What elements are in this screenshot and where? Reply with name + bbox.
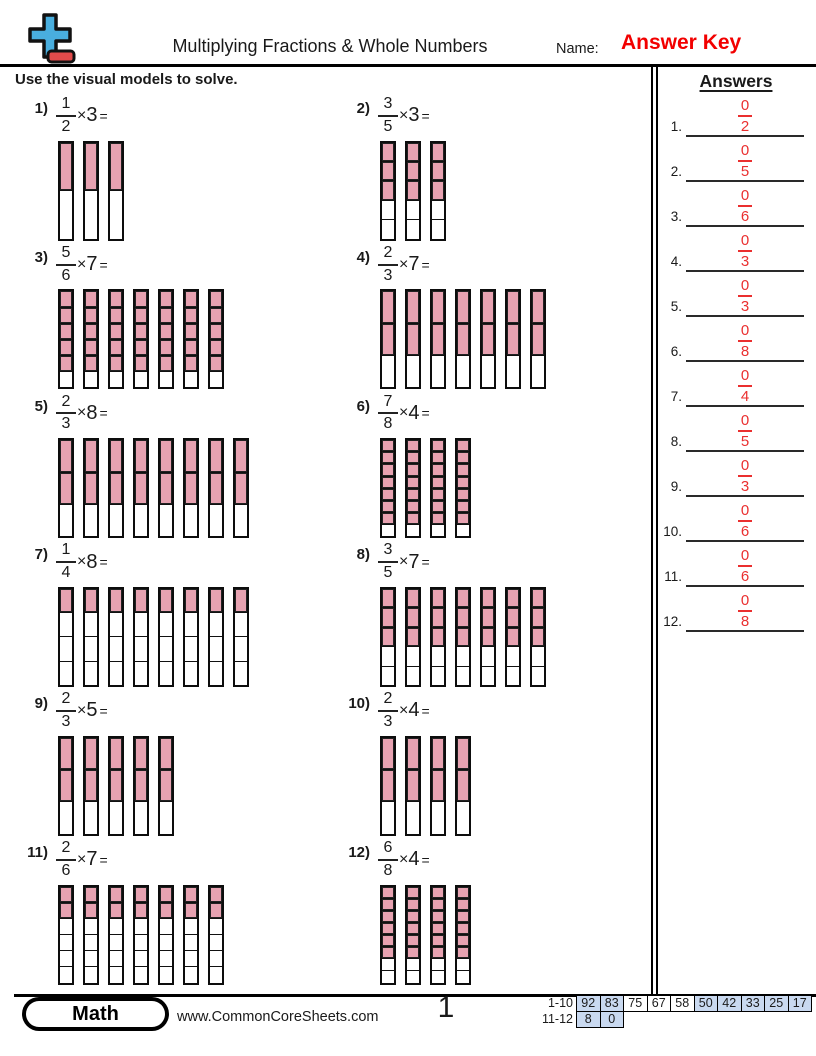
answer-number: 1. <box>656 119 682 134</box>
fraction-strip <box>108 587 124 687</box>
filled-segment <box>210 291 222 307</box>
filled-segment <box>382 608 394 627</box>
fraction-strip <box>58 587 74 687</box>
fraction-strip <box>83 438 99 538</box>
empty-segment <box>210 662 222 685</box>
fraction-strip <box>108 438 124 538</box>
fraction-denominator: 3 <box>62 416 71 433</box>
empty-segment <box>407 201 419 220</box>
multiplier: 8 <box>86 402 97 425</box>
filled-segment <box>60 356 72 372</box>
filled-segment <box>135 356 147 372</box>
empty-segment <box>160 802 172 833</box>
problem-11: 11)26×7= <box>20 840 342 989</box>
filled-segment <box>85 903 97 919</box>
bar-model <box>380 885 642 985</box>
filled-segment <box>110 291 122 307</box>
filled-segment <box>482 608 494 627</box>
fraction-strip <box>455 289 471 389</box>
problem-number: 9) <box>20 691 48 712</box>
empty-segment <box>60 505 72 536</box>
filled-segment <box>135 340 147 356</box>
filled-segment <box>457 899 469 911</box>
score-cell: 83 <box>600 995 625 1012</box>
empty-segment <box>185 935 197 951</box>
equals-sign: = <box>421 257 429 273</box>
answer-number: 9. <box>656 479 682 494</box>
multiplier: 7 <box>86 848 97 871</box>
times-sign: × <box>399 851 408 869</box>
filled-segment <box>160 887 172 903</box>
score-cell: 25 <box>764 995 789 1012</box>
filled-segment <box>457 947 469 959</box>
answer-fraction: 06 <box>738 548 752 586</box>
filled-segment <box>60 473 72 505</box>
empty-segment <box>482 647 494 666</box>
empty-segment <box>85 662 97 685</box>
problem-number: 2) <box>342 96 370 117</box>
filled-segment <box>407 513 419 525</box>
filled-segment <box>432 738 444 770</box>
empty-segment <box>85 935 97 951</box>
problem-9: 9)23×5= <box>20 691 342 840</box>
empty-segment <box>185 662 197 685</box>
filled-segment <box>407 770 419 802</box>
answer-fraction: 02 <box>738 98 752 136</box>
filled-segment <box>407 181 419 200</box>
filled-segment <box>60 887 72 903</box>
filled-segment <box>457 628 469 647</box>
filled-segment <box>160 589 172 613</box>
filled-segment <box>160 324 172 340</box>
filled-segment <box>60 291 72 307</box>
filled-segment <box>210 589 222 613</box>
empty-segment <box>432 356 444 387</box>
filled-segment <box>210 340 222 356</box>
filled-segment <box>432 770 444 802</box>
filled-segment <box>185 903 197 919</box>
problem-number: 10) <box>342 691 370 712</box>
empty-segment <box>110 637 122 661</box>
filled-segment <box>382 911 394 923</box>
empty-segment <box>382 220 394 238</box>
fraction-bar <box>56 561 76 563</box>
answer-fraction-bar <box>738 250 752 252</box>
filled-segment <box>457 324 469 356</box>
fraction-strip <box>380 141 396 241</box>
empty-segment <box>507 356 519 387</box>
empty-segment <box>60 919 72 935</box>
fraction-strip <box>58 438 74 538</box>
empty-segment <box>160 613 172 637</box>
fraction-strip <box>83 141 99 241</box>
filled-segment <box>110 903 122 919</box>
score-cell: 0 <box>600 1011 625 1028</box>
answer-fraction-bar <box>738 610 752 612</box>
filled-segment <box>60 308 72 324</box>
answer-number: 7. <box>656 389 682 404</box>
problem-12: 12)68×4= <box>342 840 642 989</box>
filled-segment <box>382 162 394 181</box>
filled-segment <box>457 452 469 464</box>
empty-segment <box>160 951 172 967</box>
fraction-strip <box>83 587 99 687</box>
fraction-strip <box>108 289 124 389</box>
fraction-strip <box>158 736 174 836</box>
answer-key-text: Answer Key <box>621 31 741 55</box>
filled-segment <box>532 324 544 356</box>
empty-segment <box>85 372 97 387</box>
empty-segment <box>60 662 72 685</box>
filled-segment <box>407 935 419 947</box>
problem-5: 5)23×8= <box>20 394 342 543</box>
filled-segment <box>407 501 419 513</box>
filled-segment <box>532 589 544 608</box>
empty-segment <box>85 505 97 536</box>
empty-segment <box>185 967 197 982</box>
answer-numerator: 0 <box>741 368 749 384</box>
empty-segment <box>407 220 419 238</box>
filled-segment <box>235 473 247 505</box>
filled-segment <box>110 308 122 324</box>
answer-numerator: 0 <box>741 143 749 159</box>
empty-segment <box>407 959 419 971</box>
empty-segment <box>457 802 469 833</box>
answer-denominator: 6 <box>741 524 749 540</box>
empty-segment <box>185 505 197 536</box>
score-cell: 92 <box>576 995 601 1012</box>
math-badge: Math <box>22 997 169 1031</box>
problem-number: 3) <box>20 245 48 266</box>
times-sign: × <box>77 553 86 571</box>
filled-segment <box>210 308 222 324</box>
empty-segment <box>185 919 197 935</box>
filled-segment <box>160 903 172 919</box>
empty-segment <box>135 967 147 982</box>
problem-number: 8) <box>342 542 370 563</box>
equals-sign: = <box>99 405 107 421</box>
fraction-bar <box>378 710 398 712</box>
multiplier: 4 <box>408 699 419 722</box>
filled-segment <box>210 887 222 903</box>
filled-segment <box>407 923 419 935</box>
empty-segment <box>382 525 394 536</box>
filled-segment <box>135 887 147 903</box>
multiplier: 7 <box>86 253 97 276</box>
empty-segment <box>210 372 222 387</box>
equals-sign: = <box>421 108 429 124</box>
empty-segment <box>110 613 122 637</box>
filled-segment <box>432 628 444 647</box>
empty-segment <box>382 647 394 666</box>
fraction-strip <box>158 438 174 538</box>
empty-segment <box>407 802 419 833</box>
empty-segment <box>60 967 72 982</box>
empty-segment <box>135 919 147 935</box>
answer-item-2: 2.05 <box>656 137 812 182</box>
filled-segment <box>185 356 197 372</box>
answer-denominator: 4 <box>741 389 749 405</box>
bar-model <box>58 438 342 538</box>
filled-segment <box>60 440 72 472</box>
empty-segment <box>160 372 172 387</box>
fraction-numerator: 2 <box>62 394 71 411</box>
answer-fraction-bar <box>738 205 752 207</box>
filled-segment <box>135 903 147 919</box>
filled-segment <box>457 911 469 923</box>
problem-expression: 12×3= <box>56 96 108 136</box>
fraction-numerator: 1 <box>62 96 71 113</box>
fraction-bar <box>378 115 398 117</box>
filled-segment <box>160 440 172 472</box>
fraction-strip <box>530 289 546 389</box>
fraction-denominator: 4 <box>62 565 71 582</box>
empty-segment <box>160 662 172 685</box>
website-text: www.CommonCoreSheets.com <box>177 1009 378 1025</box>
filled-segment <box>432 162 444 181</box>
answer-numerator: 0 <box>741 503 749 519</box>
empty-segment <box>210 967 222 982</box>
empty-segment <box>210 613 222 637</box>
answer-fraction: 08 <box>738 323 752 361</box>
empty-segment <box>135 372 147 387</box>
filled-segment <box>160 356 172 372</box>
fraction-denominator: 6 <box>62 268 71 285</box>
empty-segment <box>85 637 97 661</box>
filled-segment <box>432 464 444 476</box>
fraction-strip <box>108 141 124 241</box>
answer-denominator: 6 <box>741 569 749 585</box>
fraction-denominator: 5 <box>384 565 393 582</box>
answer-denominator: 5 <box>741 434 749 450</box>
answer-number: 5. <box>656 299 682 314</box>
fraction-strip <box>455 587 471 687</box>
filled-segment <box>382 923 394 935</box>
answer-numerator: 0 <box>741 593 749 609</box>
answer-numerator: 0 <box>741 548 749 564</box>
filled-segment <box>407 440 419 452</box>
fraction-strip <box>380 736 396 836</box>
fraction-strip <box>158 587 174 687</box>
filled-segment <box>210 903 222 919</box>
filled-segment <box>432 899 444 911</box>
fraction-strip <box>380 289 396 389</box>
answer-denominator: 5 <box>741 164 749 180</box>
answer-item-5: 5.03 <box>656 272 812 317</box>
filled-segment <box>185 589 197 613</box>
empty-segment <box>432 647 444 666</box>
empty-segment <box>382 667 394 685</box>
filled-segment <box>407 608 419 627</box>
filled-segment <box>457 513 469 525</box>
filled-segment <box>407 452 419 464</box>
filled-segment <box>457 464 469 476</box>
fraction-bar <box>378 412 398 414</box>
filled-segment <box>85 440 97 472</box>
score-row-2: 11-12 80 <box>529 1011 812 1028</box>
fraction-numerator: 5 <box>62 245 71 262</box>
fraction-strip <box>430 736 446 836</box>
fraction-strip <box>505 587 521 687</box>
fraction-strip <box>83 885 99 985</box>
empty-segment <box>60 372 72 387</box>
fraction-strip <box>183 587 199 687</box>
problem-8: 8)35×7= <box>342 542 642 691</box>
filled-segment <box>407 324 419 356</box>
filled-segment <box>85 143 97 192</box>
filled-segment <box>60 143 72 192</box>
filled-segment <box>135 291 147 307</box>
answers-list: 1.022.053.064.035.036.087.048.059.0310.0… <box>656 92 812 632</box>
filled-segment <box>135 770 147 802</box>
filled-segment <box>382 143 394 162</box>
filled-segment <box>407 291 419 323</box>
fraction-strip <box>430 885 446 985</box>
fraction-denominator: 6 <box>62 863 71 880</box>
filled-segment <box>457 440 469 452</box>
filled-segment <box>60 903 72 919</box>
filled-segment <box>407 489 419 501</box>
times-sign: × <box>399 256 408 274</box>
filled-segment <box>482 628 494 647</box>
score-table: 1-10 92837567585042332517 11-12 80 <box>529 995 812 1028</box>
filled-segment <box>185 473 197 505</box>
empty-segment <box>407 525 419 536</box>
fraction-strip <box>158 885 174 985</box>
filled-segment <box>457 608 469 627</box>
empty-segment <box>457 971 469 982</box>
empty-segment <box>60 637 72 661</box>
filled-segment <box>457 501 469 513</box>
empty-segment <box>210 935 222 951</box>
page-number: 1 <box>420 991 472 1025</box>
filled-segment <box>235 589 247 613</box>
fraction-bar <box>378 264 398 266</box>
fraction-bar <box>56 859 76 861</box>
filled-segment <box>60 324 72 340</box>
filled-segment <box>482 589 494 608</box>
answer-fraction: 03 <box>738 233 752 271</box>
answer-denominator: 3 <box>741 254 749 270</box>
fraction-strip <box>208 587 224 687</box>
fraction-strip <box>183 289 199 389</box>
empty-segment <box>407 667 419 685</box>
fraction-bar <box>378 859 398 861</box>
answer-item-4: 4.03 <box>656 227 812 272</box>
filled-segment <box>457 477 469 489</box>
multiplier: 5 <box>86 699 97 722</box>
empty-segment <box>60 613 72 637</box>
filled-segment <box>457 489 469 501</box>
fraction-strip <box>530 587 546 687</box>
filled-segment <box>457 770 469 802</box>
empty-segment <box>432 959 444 971</box>
filled-segment <box>85 473 97 505</box>
filled-segment <box>85 340 97 356</box>
filled-segment <box>160 340 172 356</box>
filled-segment <box>85 589 97 613</box>
filled-segment <box>457 887 469 899</box>
filled-segment <box>407 628 419 647</box>
fraction-strip <box>208 289 224 389</box>
filled-segment <box>85 887 97 903</box>
answer-item-1: 1.02 <box>656 92 812 137</box>
equals-sign: = <box>421 554 429 570</box>
answer-fraction: 03 <box>738 458 752 496</box>
empty-segment <box>135 637 147 661</box>
bar-model <box>380 587 642 687</box>
times-sign: × <box>77 256 86 274</box>
filled-segment <box>382 440 394 452</box>
fraction-numerator: 2 <box>384 691 393 708</box>
empty-segment <box>110 191 122 239</box>
empty-segment <box>457 667 469 685</box>
filled-segment <box>135 738 147 770</box>
filled-segment <box>210 440 222 472</box>
answers-title: Answers <box>662 71 810 92</box>
problem-expression: 68×4= <box>378 840 430 880</box>
answer-numerator: 0 <box>741 413 749 429</box>
score-row-1-label: 1-10 <box>529 995 577 1012</box>
fraction-denominator: 3 <box>384 714 393 731</box>
fraction-strip <box>233 438 249 538</box>
filled-segment <box>457 923 469 935</box>
filled-segment <box>185 324 197 340</box>
empty-segment <box>432 802 444 833</box>
answer-numerator: 0 <box>741 278 749 294</box>
filled-segment <box>110 589 122 613</box>
empty-segment <box>235 662 247 685</box>
multiplier: 7 <box>408 551 419 574</box>
empty-segment <box>60 935 72 951</box>
empty-segment <box>160 637 172 661</box>
filled-segment <box>185 887 197 903</box>
filled-segment <box>135 589 147 613</box>
empty-segment <box>210 951 222 967</box>
filled-segment <box>407 887 419 899</box>
filled-segment <box>432 947 444 959</box>
fraction-denominator: 5 <box>384 119 393 136</box>
filled-segment <box>110 440 122 472</box>
filled-segment <box>457 291 469 323</box>
empty-segment <box>110 662 122 685</box>
filled-segment <box>60 738 72 770</box>
commoncoresheets-plus-logo-icon <box>18 11 80 67</box>
problem-expression: 56×7= <box>56 245 108 285</box>
empty-segment <box>135 935 147 951</box>
filled-segment <box>382 489 394 501</box>
filled-segment <box>210 324 222 340</box>
answer-denominator: 3 <box>741 479 749 495</box>
problem-4: 4)23×7= <box>342 245 642 394</box>
answer-fraction: 04 <box>738 368 752 406</box>
filled-segment <box>382 181 394 200</box>
filled-segment <box>382 628 394 647</box>
empty-segment <box>135 951 147 967</box>
bar-model <box>58 736 342 836</box>
filled-segment <box>382 452 394 464</box>
answer-fraction: 06 <box>738 503 752 541</box>
filled-segment <box>382 513 394 525</box>
answer-number: 11. <box>656 569 682 584</box>
empty-segment <box>507 667 519 685</box>
empty-segment <box>432 971 444 982</box>
empty-segment <box>382 959 394 971</box>
score-cell: 42 <box>717 995 742 1012</box>
answer-fraction-bar <box>738 160 752 162</box>
equals-sign: = <box>99 108 107 124</box>
filled-segment <box>382 899 394 911</box>
